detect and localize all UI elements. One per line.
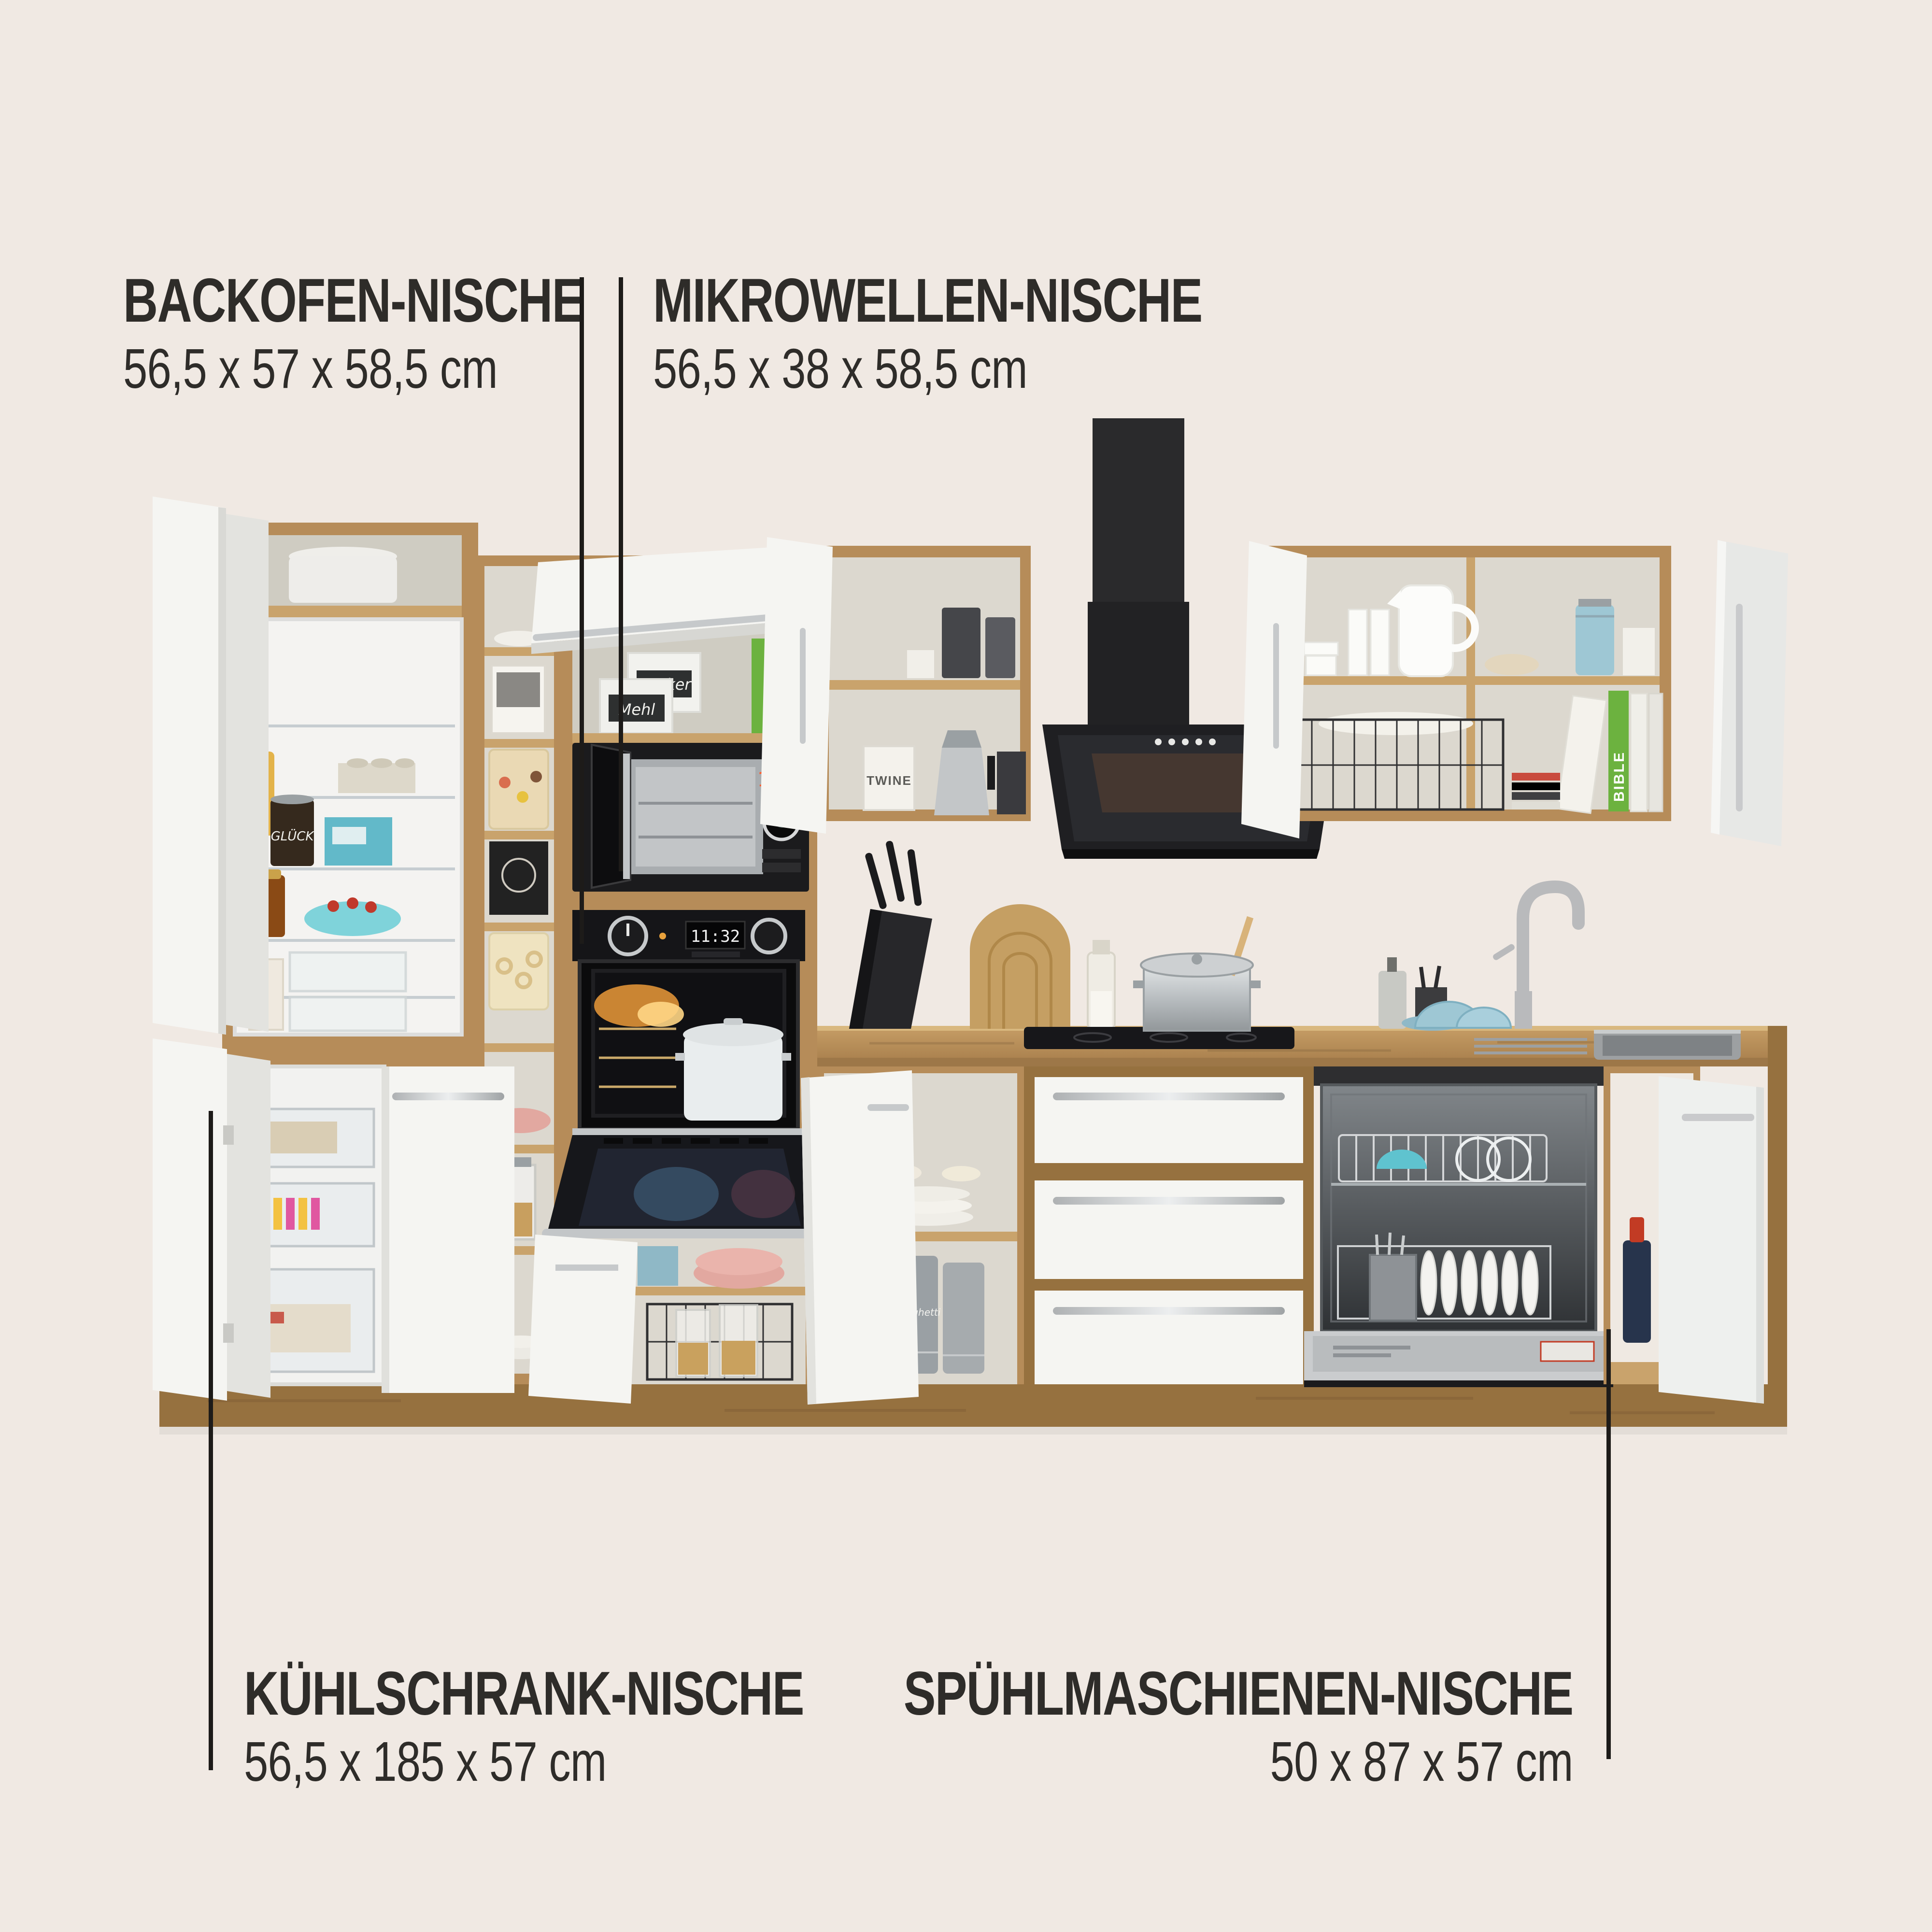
wall-cabinet-left: TWINE [760, 537, 1031, 834]
drawer-unit [1024, 1066, 1314, 1384]
oven-display: 11:32 [691, 927, 740, 946]
annotation-backofen-dimensions: 56,5 x 57 x 58,5 cm [123, 340, 583, 398]
connector-line-spuelmaschine [1606, 1329, 1611, 1759]
oven-door-open [542, 1128, 838, 1238]
oven: 11:32 [572, 910, 805, 1129]
connector-line-backofen [580, 277, 584, 944]
pasta-bag-rigatoni [489, 933, 548, 1009]
mehl-box: Mehl [600, 679, 672, 733]
tower-base-door-open [528, 1235, 638, 1404]
fridge-jar-label: GLÜCK [271, 828, 315, 844]
right-base-door-open [1659, 1076, 1764, 1404]
annotation-spuelmaschine-dimensions: 50 x 87 x 57 cm [904, 1733, 1573, 1791]
knife-block [849, 840, 932, 1029]
oven-door-handle [542, 1229, 838, 1238]
annotation-spuelmaschine-title: SPÜHLMASCHIENEN-NISCHE [904, 1662, 1573, 1726]
dishwasher-door-open [1304, 1331, 1613, 1387]
wall-left-door-open [760, 537, 833, 834]
blue-tin [638, 1246, 678, 1286]
annotated-kitchen-image: GLÜCK [0, 0, 1932, 1932]
fridge-interior: GLÜCK [235, 619, 462, 1035]
black-print-card [489, 841, 548, 915]
twine-box: TWINE [864, 746, 914, 810]
connector-line-mikrowellen [619, 277, 623, 871]
dishwasher [1304, 1066, 1613, 1387]
door-handle [1736, 604, 1743, 811]
annotation-mikrowellen-title: MIKROWELLEN-NISCHE [653, 269, 1202, 333]
cutlery-basket [1370, 1255, 1416, 1321]
base-open-cabinet: Spaghetti [801, 1066, 1024, 1405]
wall-cabinet-right: BIBLE [1241, 540, 1788, 846]
pasta-bag [489, 750, 548, 829]
twine-label: TWINE [867, 773, 912, 788]
annotation-backofen-title: BACKOFEN-NISCHE [123, 269, 583, 333]
faucet [1492, 887, 1578, 1029]
annotation-mikrowellen-dimensions: 56,5 x 38 x 58,5 cm [653, 340, 1202, 398]
annotation-mikrowellen: MIKROWELLEN-NISCHE 56,5 x 38 x 58,5 cm [653, 269, 1357, 398]
spice-bottle [1088, 940, 1115, 1029]
tower-base-cabinet [528, 1235, 806, 1404]
pullout-cabinet-front [382, 1066, 514, 1393]
blue-clip-jar [1576, 599, 1614, 675]
connector-line-kuehlschrank [209, 1111, 213, 1770]
annotation-backofen: BACKOFEN-NISCHE 56,5 x 57 x 58,5 cm [123, 269, 713, 398]
pot-in-oven [675, 1018, 791, 1121]
wall-right-door-open-right [1711, 540, 1788, 846]
oven-knob-right [753, 920, 785, 952]
cutting-board [970, 904, 1070, 1029]
wall-right-door-open-left [1241, 541, 1307, 838]
bible-book-spine: BIBLE [1611, 751, 1627, 802]
pullout-handle [392, 1093, 504, 1100]
mehl-label: Mehl [618, 700, 655, 719]
base-cabinet-door-open [801, 1070, 919, 1405]
cooking-pot [1133, 916, 1261, 1031]
annotation-spuelmaschine: SPÜHLMASCHIENEN-NISCHE 50 x 87 x 57 cm [715, 1662, 1573, 1791]
